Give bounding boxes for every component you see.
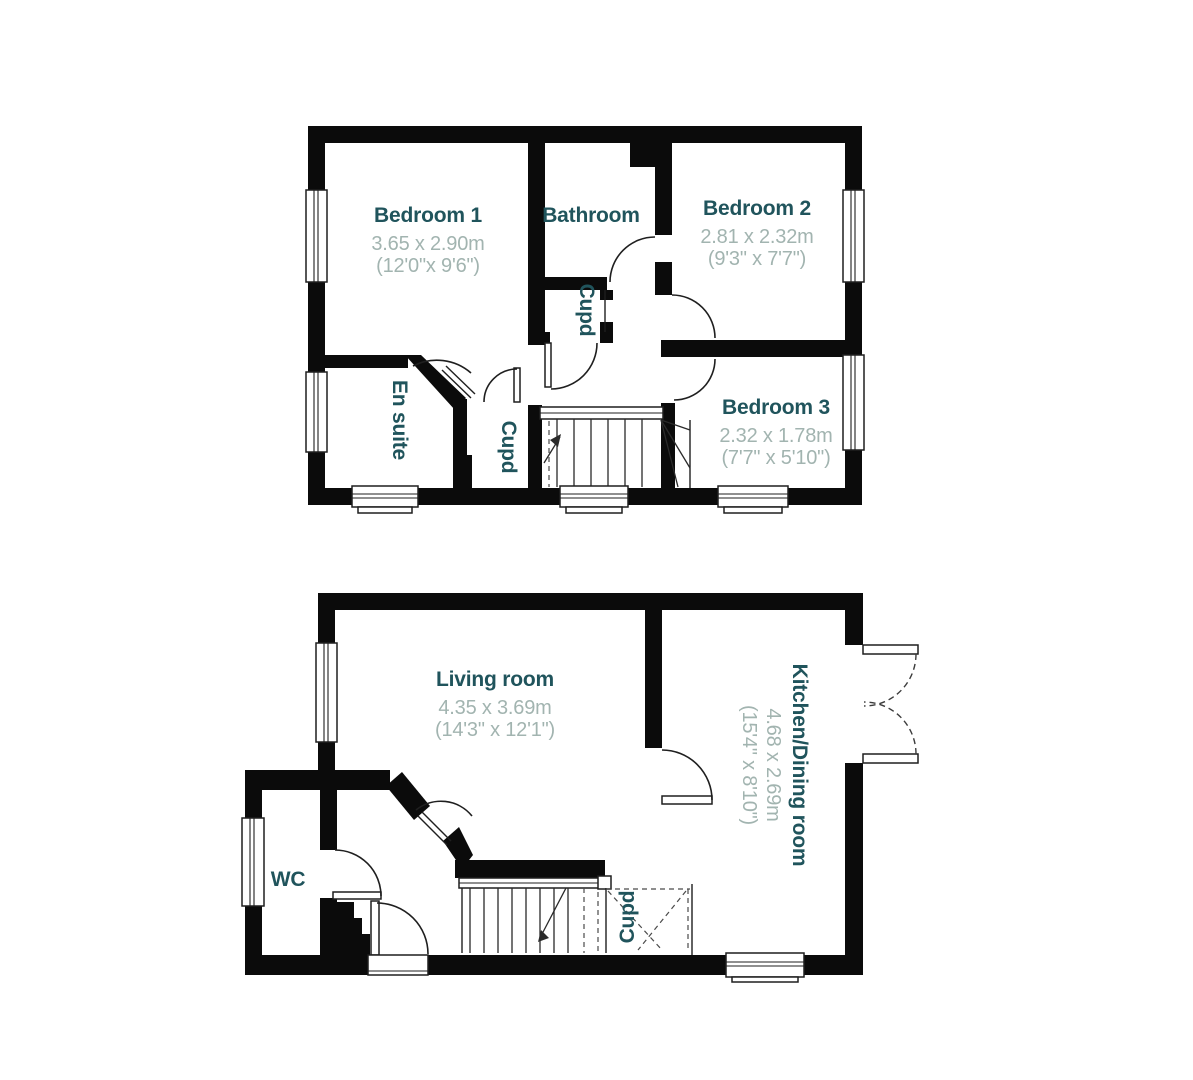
room-label-kitchen-dining: Kitchen/Dining room — [788, 664, 811, 867]
window — [560, 486, 628, 513]
room-dim-metric-bedroom-1: 3.65 x 2.90m — [371, 233, 484, 255]
window — [843, 190, 864, 282]
window — [726, 953, 804, 982]
ground-floor-stairs — [459, 876, 692, 955]
first-floor-plan: Bedroom 1 3.65 x 2.90m (12'0"x 9'6") Bat… — [306, 126, 864, 513]
ground-floor-labels: Living room 4.35 x 3.69m (14'3" x 12'1")… — [271, 664, 811, 944]
room-label-cupboard-landing: Cupd — [575, 284, 598, 337]
room-dim-imperial-kitchen-dining: (15'4" x 8'10") — [738, 705, 760, 825]
window — [306, 372, 327, 452]
room-dim-metric-bedroom-2: 2.81 x 2.32m — [700, 226, 813, 248]
room-dim-imperial-living-room: (14'3" x 12'1") — [435, 719, 555, 741]
room-dim-imperial-bedroom-3: (7'7" x 5'10") — [721, 447, 830, 469]
floor-plan-drawing: Bedroom 1 3.65 x 2.90m (12'0"x 9'6") Bat… — [0, 0, 1193, 1080]
room-label-en-suite: En suite — [388, 380, 411, 460]
room-label-bathroom: Bathroom — [542, 204, 640, 227]
room-label-bedroom-2: Bedroom 2 — [703, 197, 811, 220]
window — [718, 486, 788, 513]
window — [352, 486, 418, 513]
room-dim-metric-living-room: 4.35 x 3.69m — [438, 697, 551, 719]
room-label-living-room: Living room — [436, 668, 554, 691]
room-dim-metric-bedroom-3: 2.32 x 1.78m — [719, 425, 832, 447]
room-dim-imperial-bedroom-2: (9'3" x 7'7") — [708, 248, 806, 270]
room-label-bedroom-3: Bedroom 3 — [722, 396, 830, 419]
room-label-cupboard-stairs: Cupd — [497, 421, 520, 474]
room-dim-metric-kitchen-dining: 4.68 x 2.69m — [762, 708, 784, 821]
ground-floor-plan: Living room 4.35 x 3.69m (14'3" x 12'1")… — [242, 593, 918, 982]
room-label-bedroom-1: Bedroom 1 — [374, 204, 482, 227]
room-label-wc: WC — [271, 868, 306, 891]
floor-plan-page: Bedroom 1 3.65 x 2.90m (12'0"x 9'6") Bat… — [0, 0, 1193, 1080]
window — [306, 190, 327, 282]
window — [316, 643, 337, 742]
window — [242, 818, 264, 906]
window — [843, 355, 864, 450]
room-label-cupboard-understairs: Cupd — [616, 891, 639, 944]
room-dim-imperial-bedroom-1: (12'0"x 9'6") — [376, 255, 480, 277]
